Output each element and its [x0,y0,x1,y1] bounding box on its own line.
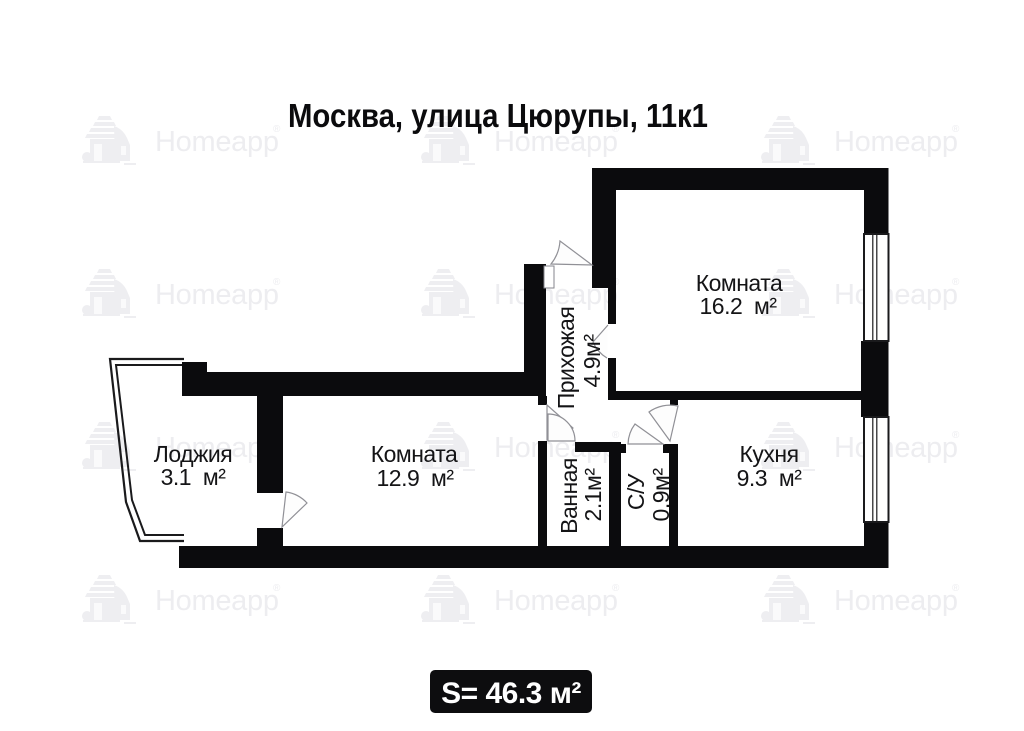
svg-text:Прихожая: Прихожая [553,307,579,410]
svg-text:16.2 м²: 16.2 м² [699,293,777,319]
svg-text:4.9м²: 4.9м² [579,334,605,388]
svg-text:Москва, улица Цюрупы, 11к1: Москва, улица Цюрупы, 11к1 [288,97,708,134]
svg-text:Ванная: Ванная [556,458,582,534]
svg-text:С/У: С/У [623,473,649,510]
svg-text:Кухня: Кухня [739,441,798,467]
svg-text:0.9м²: 0.9м² [648,468,674,522]
svg-text:2.1м²: 2.1м² [580,468,606,522]
svg-text:9.3 м²: 9.3 м² [737,465,803,491]
svg-text:12.9 м²: 12.9 м² [376,465,454,491]
svg-text:3.1 м²: 3.1 м² [161,464,227,490]
svg-text:Комната: Комната [371,441,458,467]
svg-text:S= 46.3 м²: S= 46.3 м² [441,677,581,710]
